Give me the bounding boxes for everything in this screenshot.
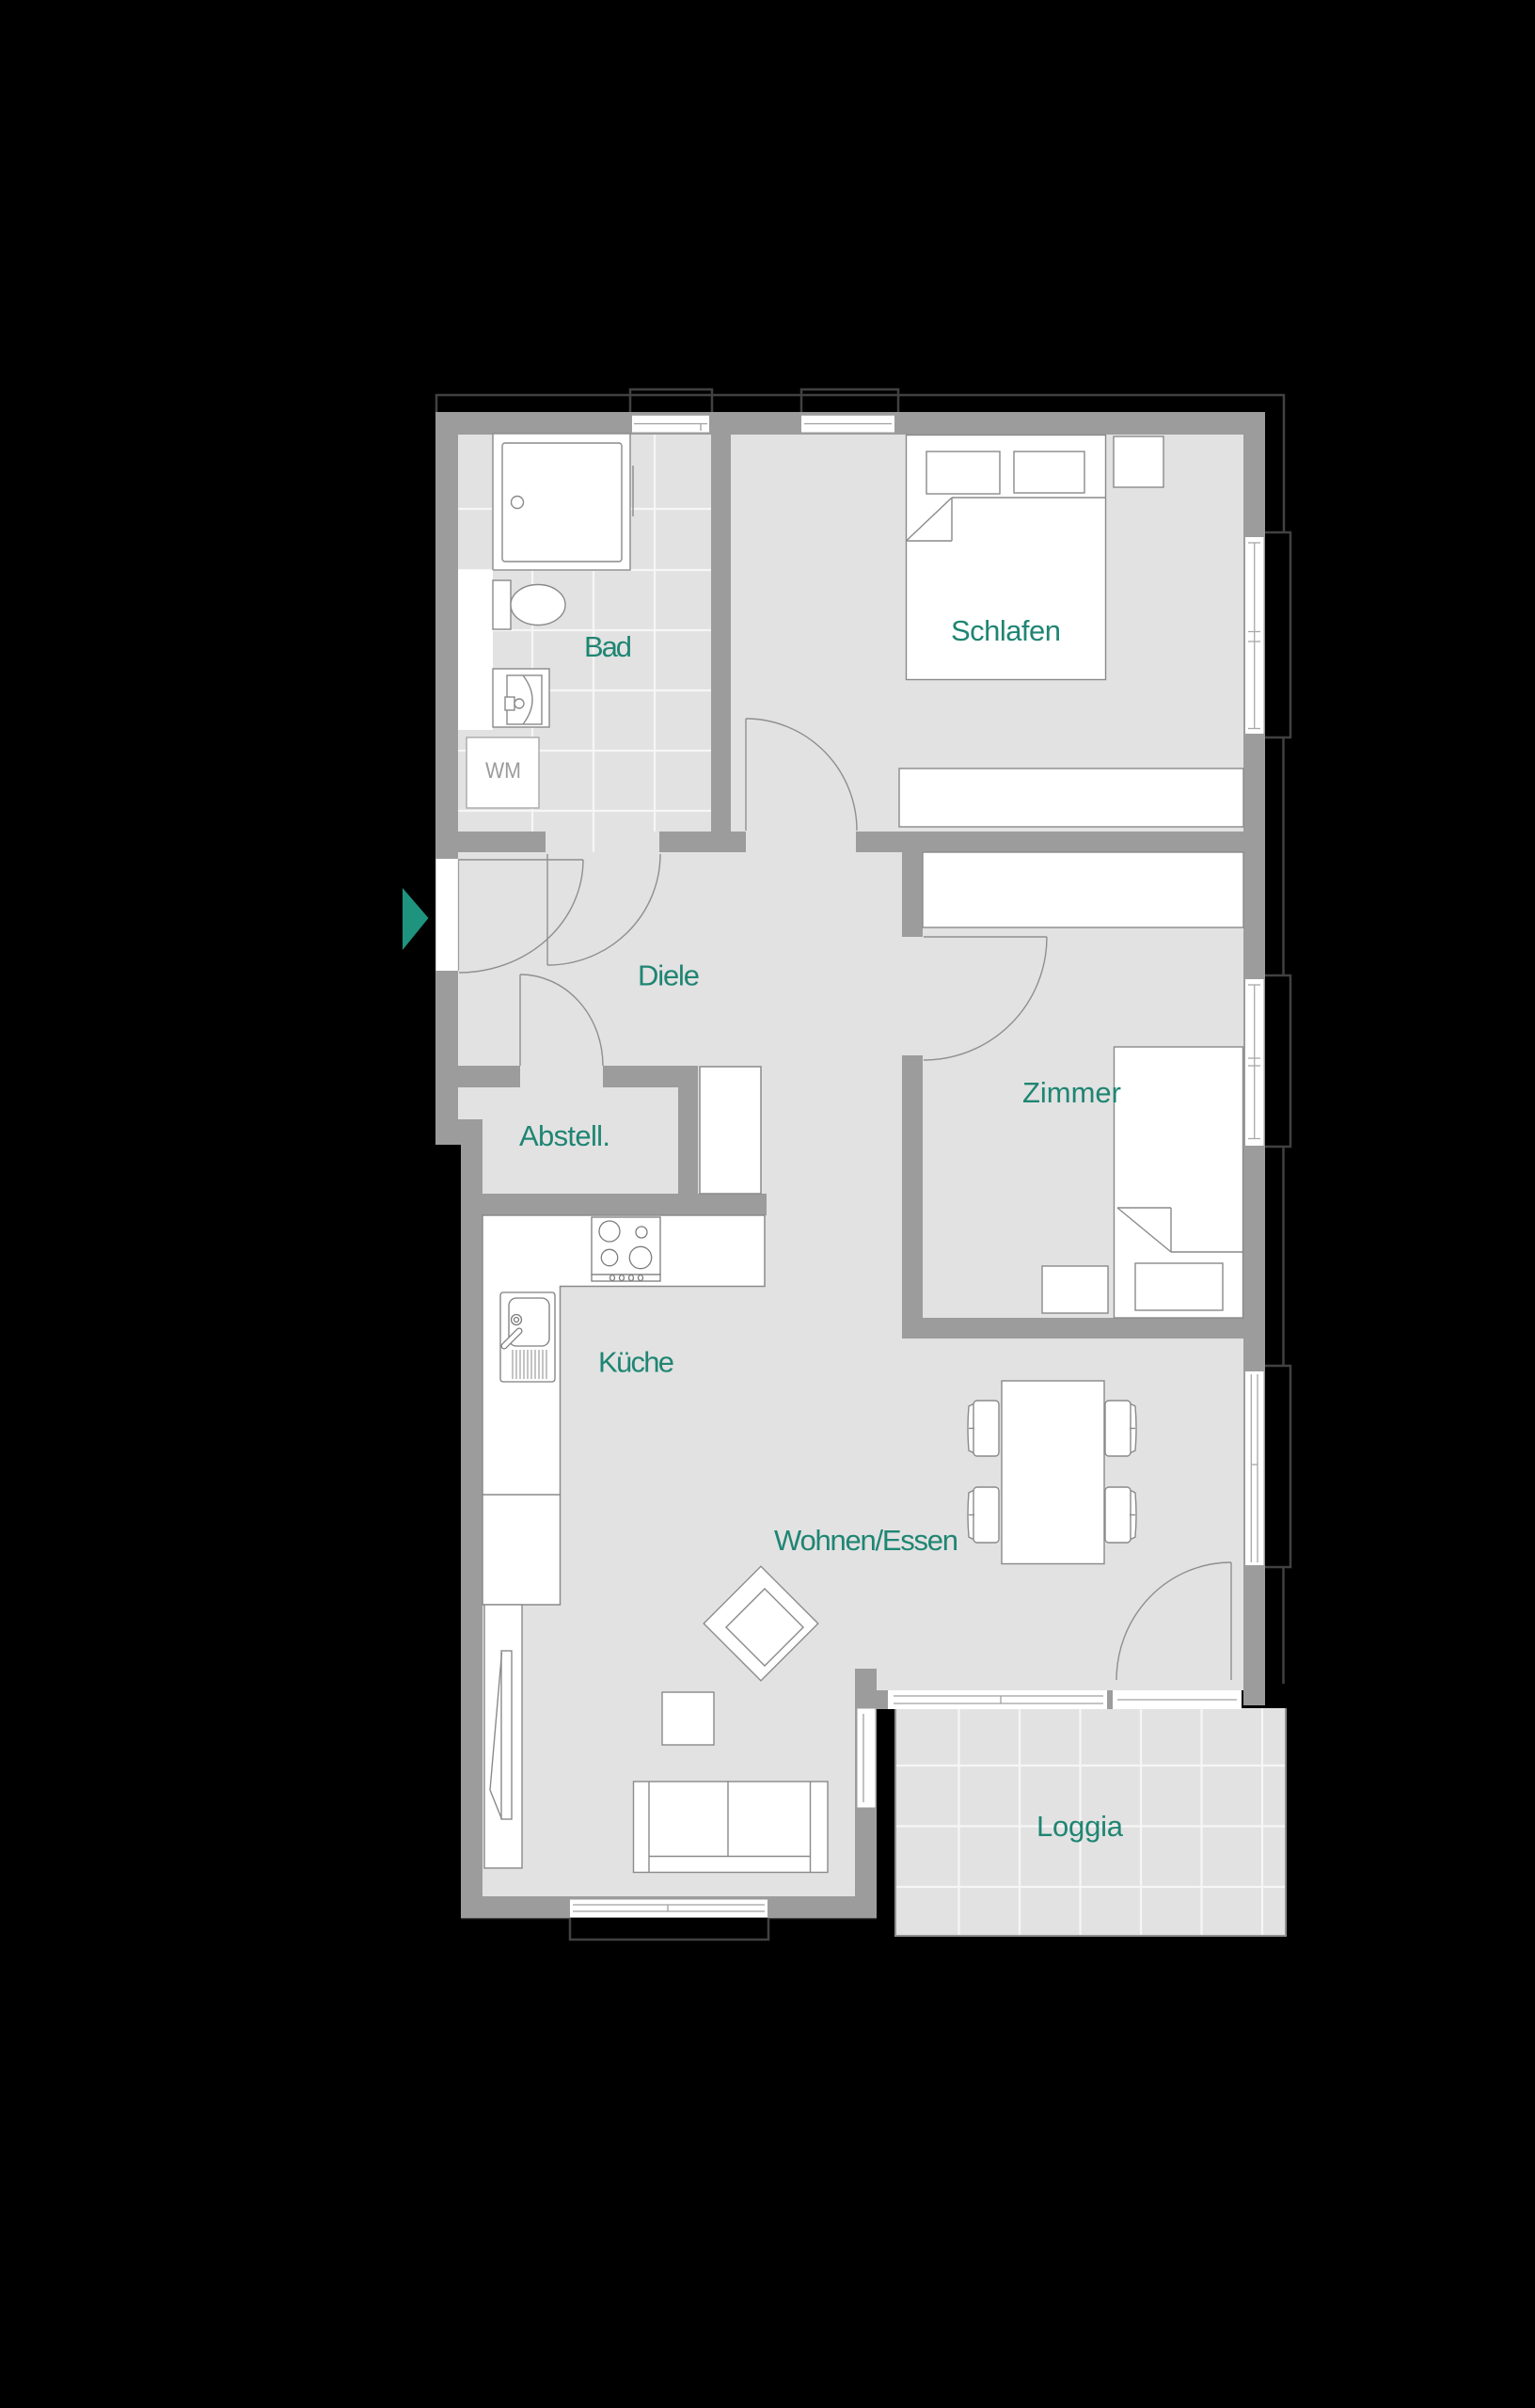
svg-text:Loggia: Loggia [1037,1810,1124,1843]
svg-text:WM: WM [485,758,521,784]
svg-text:Abstell.: Abstell. [519,1119,610,1152]
svg-text:Schlafen: Schlafen [951,614,1061,647]
svg-text:Bad: Bad [584,630,632,663]
svg-text:Zimmer: Zimmer [1022,1076,1121,1109]
svg-text:Diele: Diele [638,959,700,992]
svg-text:Küche: Küche [598,1346,674,1379]
svg-text:Wohnen/Essen: Wohnen/Essen [774,1524,958,1557]
